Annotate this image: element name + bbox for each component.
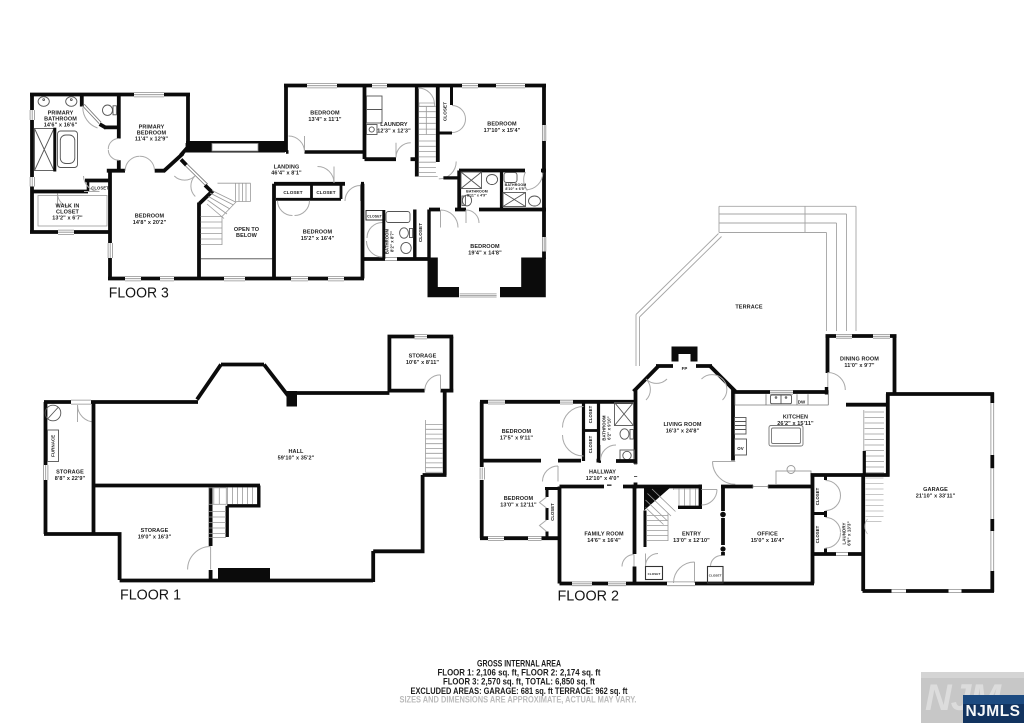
svg-text:DW: DW <box>798 400 806 405</box>
svg-text:10'6" x 8'11": 10'6" x 8'11" <box>406 360 440 366</box>
svg-text:FLOOR 2: FLOOR 2 <box>558 588 620 605</box>
svg-text:OFFICE: OFFICE <box>757 532 778 538</box>
svg-text:21'10" x 33'11": 21'10" x 33'11" <box>916 494 956 500</box>
svg-text:13'4" x 11'1": 13'4" x 11'1" <box>308 117 342 123</box>
svg-text:FLOOR 3: FLOOR 3 <box>109 285 169 302</box>
svg-text:CLOSET: CLOSET <box>418 223 423 242</box>
svg-text:8'11" x 4'9": 8'11" x 4'9" <box>467 194 487 198</box>
svg-text:FP: FP <box>682 366 688 371</box>
svg-text:HALL: HALL <box>288 449 304 455</box>
svg-text:12'10" x 4'0": 12'10" x 4'0" <box>586 476 620 482</box>
svg-text:LAUNDRY: LAUNDRY <box>380 122 408 128</box>
svg-text:NJMLS: NJMLS <box>965 703 1020 720</box>
svg-text:59'10" x 35'2": 59'10" x 35'2" <box>278 456 315 462</box>
svg-text:STORAGE: STORAGE <box>56 470 84 476</box>
svg-text:14'6" x 16'6": 14'6" x 16'6" <box>44 123 78 129</box>
svg-text:BEDROOM: BEDROOM <box>135 214 165 220</box>
svg-text:19'0" x 16'3": 19'0" x 16'3" <box>138 535 172 541</box>
svg-text:CLOSET: CLOSET <box>815 487 820 505</box>
svg-text:16'3" x 24'8": 16'3" x 24'8" <box>666 429 700 435</box>
svg-text:OV: OV <box>737 446 744 451</box>
svg-text:13'0" x 12'11": 13'0" x 12'11" <box>500 503 537 509</box>
svg-text:6'2" x 9'10": 6'2" x 9'10" <box>607 416 612 439</box>
svg-text:TERRACE: TERRACE <box>735 305 763 311</box>
svg-text:CLOSET: CLOSET <box>91 185 109 190</box>
svg-text:CLOSET: CLOSET <box>588 405 593 423</box>
svg-text:SIZES AND DIMENSIONS ARE APPRO: SIZES AND DIMENSIONS ARE APPROXIMATE, AC… <box>400 694 637 704</box>
svg-text:15'0" x 16'4": 15'0" x 16'4" <box>751 538 785 544</box>
svg-text:8'2" x 8'7": 8'2" x 8'7" <box>390 231 395 252</box>
svg-text:BEDROOM: BEDROOM <box>303 230 333 236</box>
svg-text:FLOOR 1: FLOOR 1 <box>120 587 181 604</box>
svg-text:STORAGE: STORAGE <box>409 354 437 360</box>
svg-text:19'4" x 14'8": 19'4" x 14'8" <box>468 251 502 257</box>
svg-text:8'10" x 6'5": 8'10" x 6'5" <box>505 187 526 191</box>
svg-text:46'4" x 8'1": 46'4" x 8'1" <box>271 171 302 177</box>
svg-text:BEDROOM: BEDROOM <box>470 244 500 250</box>
svg-text:BELOW: BELOW <box>236 233 258 239</box>
svg-text:CLOSET: CLOSET <box>367 214 383 218</box>
svg-text:14'6" x 16'4": 14'6" x 16'4" <box>587 538 621 544</box>
svg-text:LIVING ROOM: LIVING ROOM <box>663 422 701 428</box>
svg-text:ENTRY: ENTRY <box>682 532 701 538</box>
svg-text:DINING ROOM: DINING ROOM <box>840 357 879 363</box>
svg-text:26'2" x 15'11": 26'2" x 15'11" <box>777 421 814 427</box>
svg-text:FURNACE: FURNACE <box>51 435 56 457</box>
svg-text:CLOSET: CLOSET <box>815 525 820 543</box>
svg-text:BEDROOM: BEDROOM <box>310 111 340 117</box>
svg-text:CLOSET: CLOSET <box>550 503 555 521</box>
svg-text:BEDROOM: BEDROOM <box>502 429 532 435</box>
svg-text:14'8" x 20'2": 14'8" x 20'2" <box>133 220 167 226</box>
svg-text:17'10" x 15'4": 17'10" x 15'4" <box>484 128 521 134</box>
svg-text:15'2" x 16'4": 15'2" x 16'4" <box>301 236 335 242</box>
svg-text:12'3" x 12'3": 12'3" x 12'3" <box>377 129 411 135</box>
svg-text:CLOSET: CLOSET <box>588 435 593 453</box>
svg-text:GARAGE: GARAGE <box>923 487 948 493</box>
svg-text:17'5" x 9'11": 17'5" x 9'11" <box>500 436 534 442</box>
svg-text:CLOSET: CLOSET <box>648 572 661 576</box>
svg-text:11'4" x 12'9": 11'4" x 12'9" <box>135 137 169 143</box>
svg-text:13'2" x 6'7": 13'2" x 6'7" <box>52 216 83 222</box>
svg-text:BEDROOM: BEDROOM <box>487 122 517 128</box>
svg-text:FAMILY ROOM: FAMILY ROOM <box>584 532 624 538</box>
svg-text:13'0" x 12'10": 13'0" x 12'10" <box>673 538 710 544</box>
svg-text:HALLWAY: HALLWAY <box>589 470 616 476</box>
svg-text:11'0" x 9'7": 11'0" x 9'7" <box>844 363 874 369</box>
svg-text:CLOSET: CLOSET <box>709 573 722 577</box>
svg-text:CLOSET: CLOSET <box>316 190 335 195</box>
svg-text:8'8" x 22'9": 8'8" x 22'9" <box>55 476 86 482</box>
svg-text:6'0" x 13'3": 6'0" x 13'3" <box>847 521 852 546</box>
svg-text:BEDROOM: BEDROOM <box>504 496 534 502</box>
svg-text:CLOSET: CLOSET <box>443 102 448 121</box>
svg-text:KITCHEN: KITCHEN <box>783 415 808 421</box>
svg-text:CLOSET: CLOSET <box>283 190 302 195</box>
svg-text:STORAGE: STORAGE <box>141 528 169 534</box>
